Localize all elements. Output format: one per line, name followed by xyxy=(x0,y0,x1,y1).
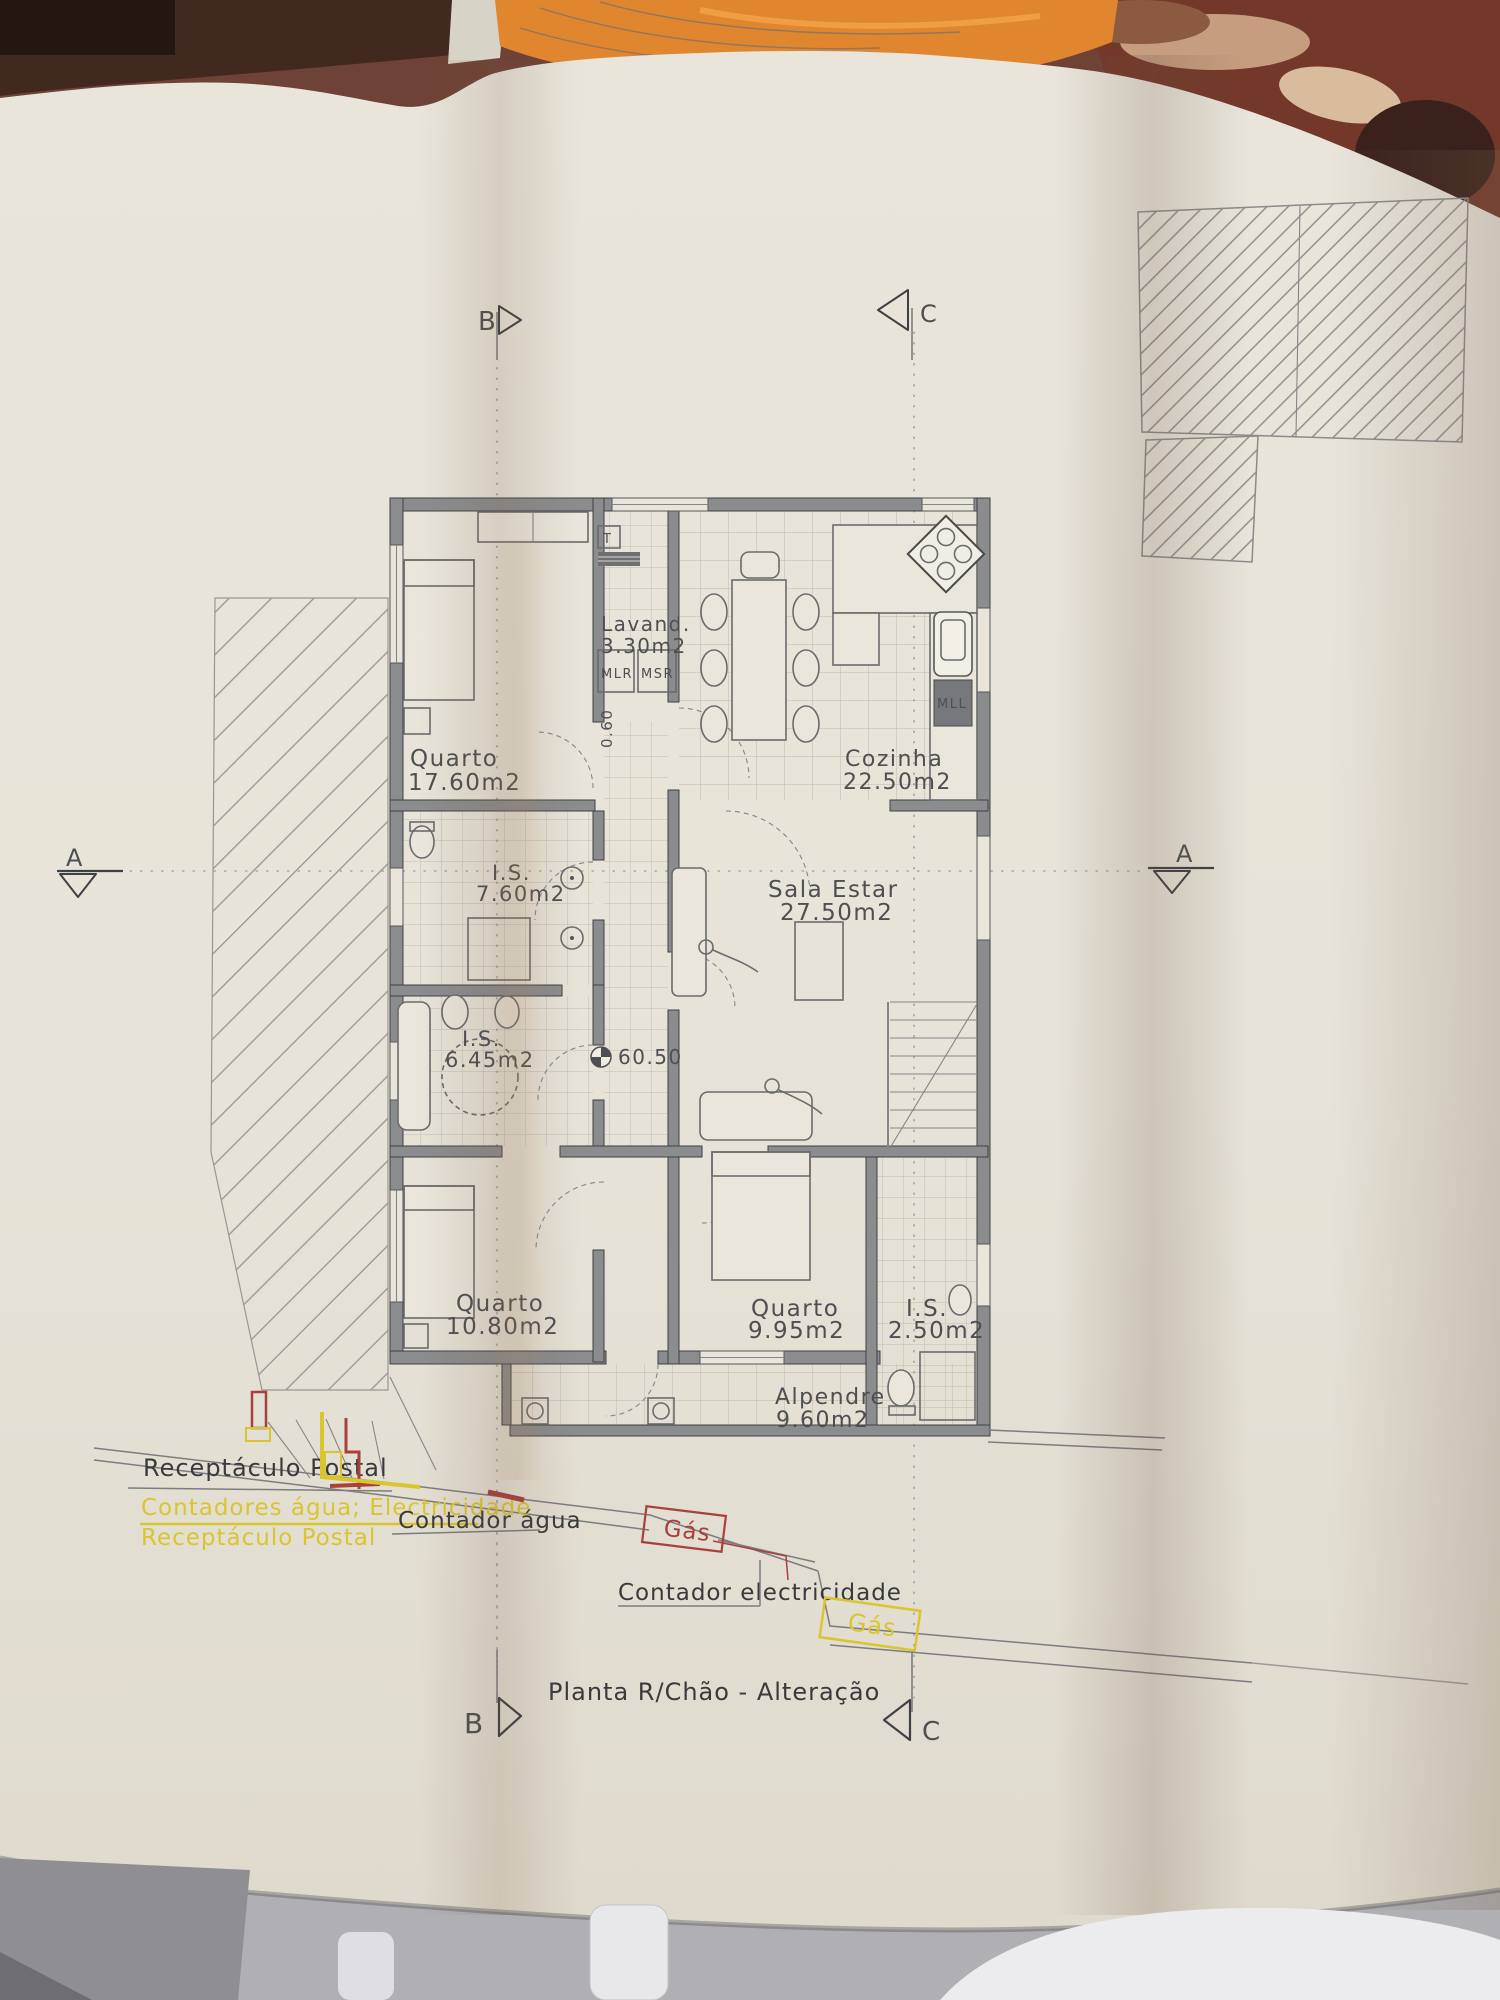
section-label-a-left: A xyxy=(66,844,84,872)
scene: MLL T MLR MSR xyxy=(0,0,1500,2000)
room-area: 2.50m2 xyxy=(888,1318,985,1344)
chair xyxy=(701,706,727,742)
dark-corner xyxy=(0,0,175,55)
room-area: 9.60m2 xyxy=(776,1408,869,1433)
chair xyxy=(793,650,819,686)
chair xyxy=(793,706,819,742)
section-label-c-top: C xyxy=(920,300,938,328)
basin-icon xyxy=(949,1285,971,1315)
postal-box-label-2: Receptáculo Postal xyxy=(141,1525,376,1551)
hall-tiles xyxy=(604,722,668,1146)
chair-leg xyxy=(338,1932,394,2000)
chair-leg xyxy=(590,1905,668,2000)
threshold-level: 0.60 xyxy=(598,709,616,748)
dryer-label: MSR xyxy=(641,667,674,682)
heater-grille xyxy=(598,552,640,566)
bed xyxy=(712,1152,810,1280)
postal-box-label: Receptáculo Postal xyxy=(143,1454,388,1482)
chair xyxy=(701,650,727,686)
water-heater-label: T xyxy=(602,532,612,547)
photo-of-floor-plan: MLL T MLR MSR xyxy=(0,0,1500,2000)
washer-label: MLR xyxy=(601,667,633,682)
room-area: 9.95m2 xyxy=(748,1318,845,1344)
floor-level-value: 60.50 xyxy=(618,1045,683,1069)
dishwasher-label: MLL xyxy=(937,697,967,712)
drawing-title: Planta R/Chão - Alteração xyxy=(548,1678,880,1706)
room-area: 27.50m2 xyxy=(780,900,893,926)
room-name: Alpendre xyxy=(775,1385,886,1410)
room-area: 3.30m2 xyxy=(601,634,687,658)
sofa xyxy=(672,868,706,996)
sofa xyxy=(700,1092,812,1140)
section-label-c-bottom: C xyxy=(922,1717,942,1747)
room-name: Lavand. xyxy=(601,612,691,636)
room-area: 22.50m2 xyxy=(843,770,952,795)
chair xyxy=(701,594,727,630)
svg-text:0.60: 0.60 xyxy=(598,709,616,748)
room-name: Cozinha xyxy=(845,747,943,772)
toilet-icon xyxy=(888,1370,914,1406)
chair xyxy=(741,552,779,578)
hatch-existing-left xyxy=(211,598,388,1390)
level-marker: 60.50 xyxy=(591,1045,683,1069)
chair xyxy=(793,594,819,630)
sink-icon xyxy=(934,612,972,676)
counter xyxy=(833,613,879,665)
